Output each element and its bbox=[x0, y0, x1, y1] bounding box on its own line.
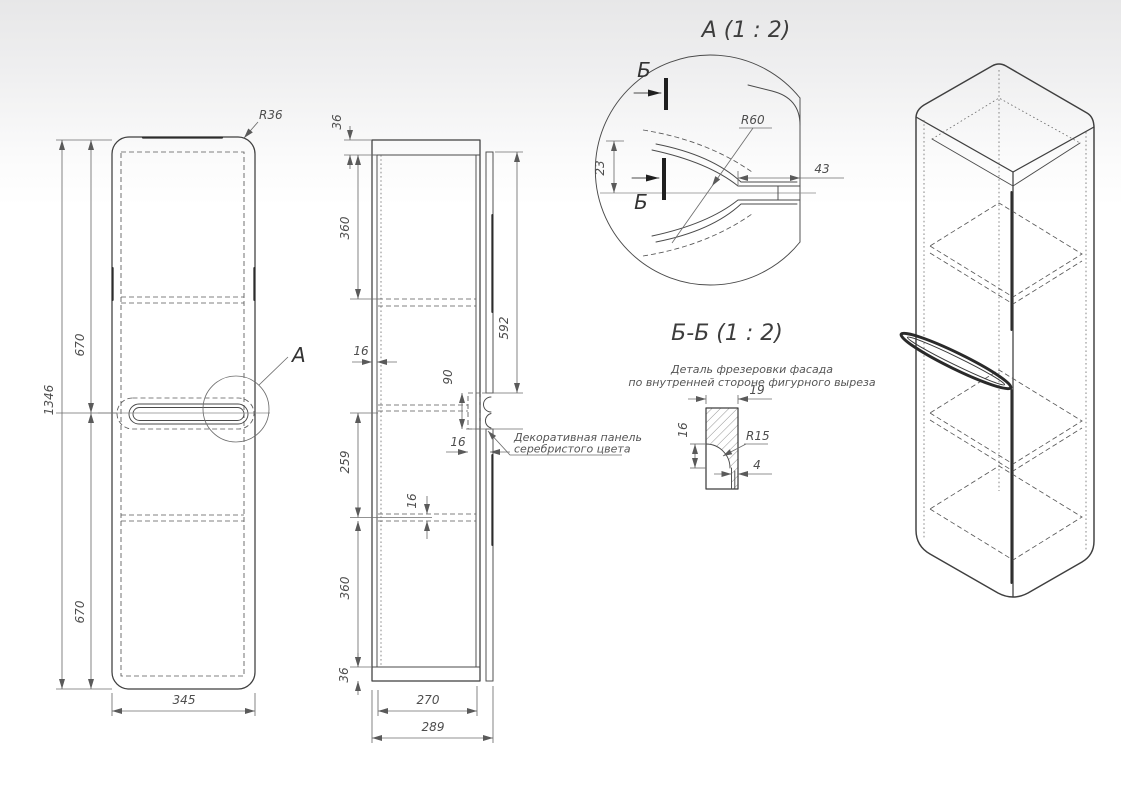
dim-facade-thickness: 16 bbox=[450, 435, 466, 449]
drawing-page: А 1346 670 670 345 R36 bbox=[0, 0, 1121, 795]
side-view: 36 360 592 16 90 16 259 16 360 bbox=[330, 114, 642, 743]
dim-bottom-panel: 36 bbox=[337, 667, 351, 683]
dim-lower-shelf: 360 bbox=[338, 576, 352, 599]
dim-top-panel: 36 bbox=[330, 114, 344, 130]
dim-upper-shelf: 360 bbox=[338, 216, 352, 239]
section-note-1: Деталь фрезеровки фасада bbox=[670, 363, 833, 376]
section-bb-view: Б-Б (1 : 2) Деталь фрезеровки фасада по … bbox=[628, 321, 875, 489]
dim-upper-section: 670 bbox=[73, 333, 87, 356]
isometric-view bbox=[898, 64, 1094, 597]
dim-width: 345 bbox=[173, 693, 196, 707]
detail-a-callout: А bbox=[290, 343, 306, 367]
dim-slot-length: 43 bbox=[814, 162, 829, 176]
iso-handle bbox=[898, 327, 1015, 395]
dim-mill-height: 16 bbox=[676, 422, 690, 438]
front-view: А 1346 670 670 345 R36 bbox=[42, 108, 306, 716]
iso-bottom-panel bbox=[930, 466, 1082, 560]
section-marker-top: Б bbox=[637, 58, 651, 82]
dim-facade-height: 592 bbox=[497, 317, 511, 340]
detail-a-title: А (1 : 2) bbox=[700, 18, 791, 43]
dim-inner-width: 270 bbox=[417, 693, 440, 707]
detail-a-circle bbox=[203, 376, 269, 442]
detail-boundary bbox=[595, 55, 800, 285]
front-inner-dashed bbox=[121, 152, 244, 676]
section-marker-bottom: Б bbox=[634, 190, 648, 214]
dim-lip-width: 4 bbox=[753, 458, 761, 472]
section-bb-title: Б-Б (1 : 2) bbox=[671, 321, 783, 346]
dim-mill-radius-r15: R15 bbox=[746, 429, 770, 443]
dim-depth: 289 bbox=[422, 720, 445, 734]
dim-middle-section: 259 bbox=[338, 451, 352, 474]
dim-handle-cutout: 90 bbox=[441, 369, 455, 385]
dim-panel-thickness: 19 bbox=[749, 383, 764, 397]
dim-detail-offset: 23 bbox=[593, 160, 607, 175]
dim-mill-radius-r60: R60 bbox=[741, 113, 765, 127]
dim-wall-thickness: 16 bbox=[353, 344, 369, 358]
technical-drawing: А 1346 670 670 345 R36 bbox=[0, 0, 1121, 795]
side-handle-dashed bbox=[468, 393, 480, 429]
iso-silhouette bbox=[916, 64, 1094, 597]
side-outline bbox=[372, 140, 480, 681]
dim-shelf-thickness: 16 bbox=[405, 493, 419, 509]
dim-total-height: 1346 bbox=[42, 384, 56, 415]
iso-shelf-1 bbox=[930, 203, 1082, 297]
section-hatch bbox=[706, 408, 738, 489]
handle-cutout bbox=[129, 404, 248, 424]
dim-corner-radius: R36 bbox=[259, 108, 283, 122]
dim-lower-section: 670 bbox=[73, 600, 87, 623]
annotation-line2: серебристого цвета bbox=[514, 443, 631, 456]
iso-shelf-2 bbox=[930, 370, 1082, 464]
detail-a-view: А (1 : 2) Б Б 23 R60 43 bbox=[593, 18, 844, 285]
